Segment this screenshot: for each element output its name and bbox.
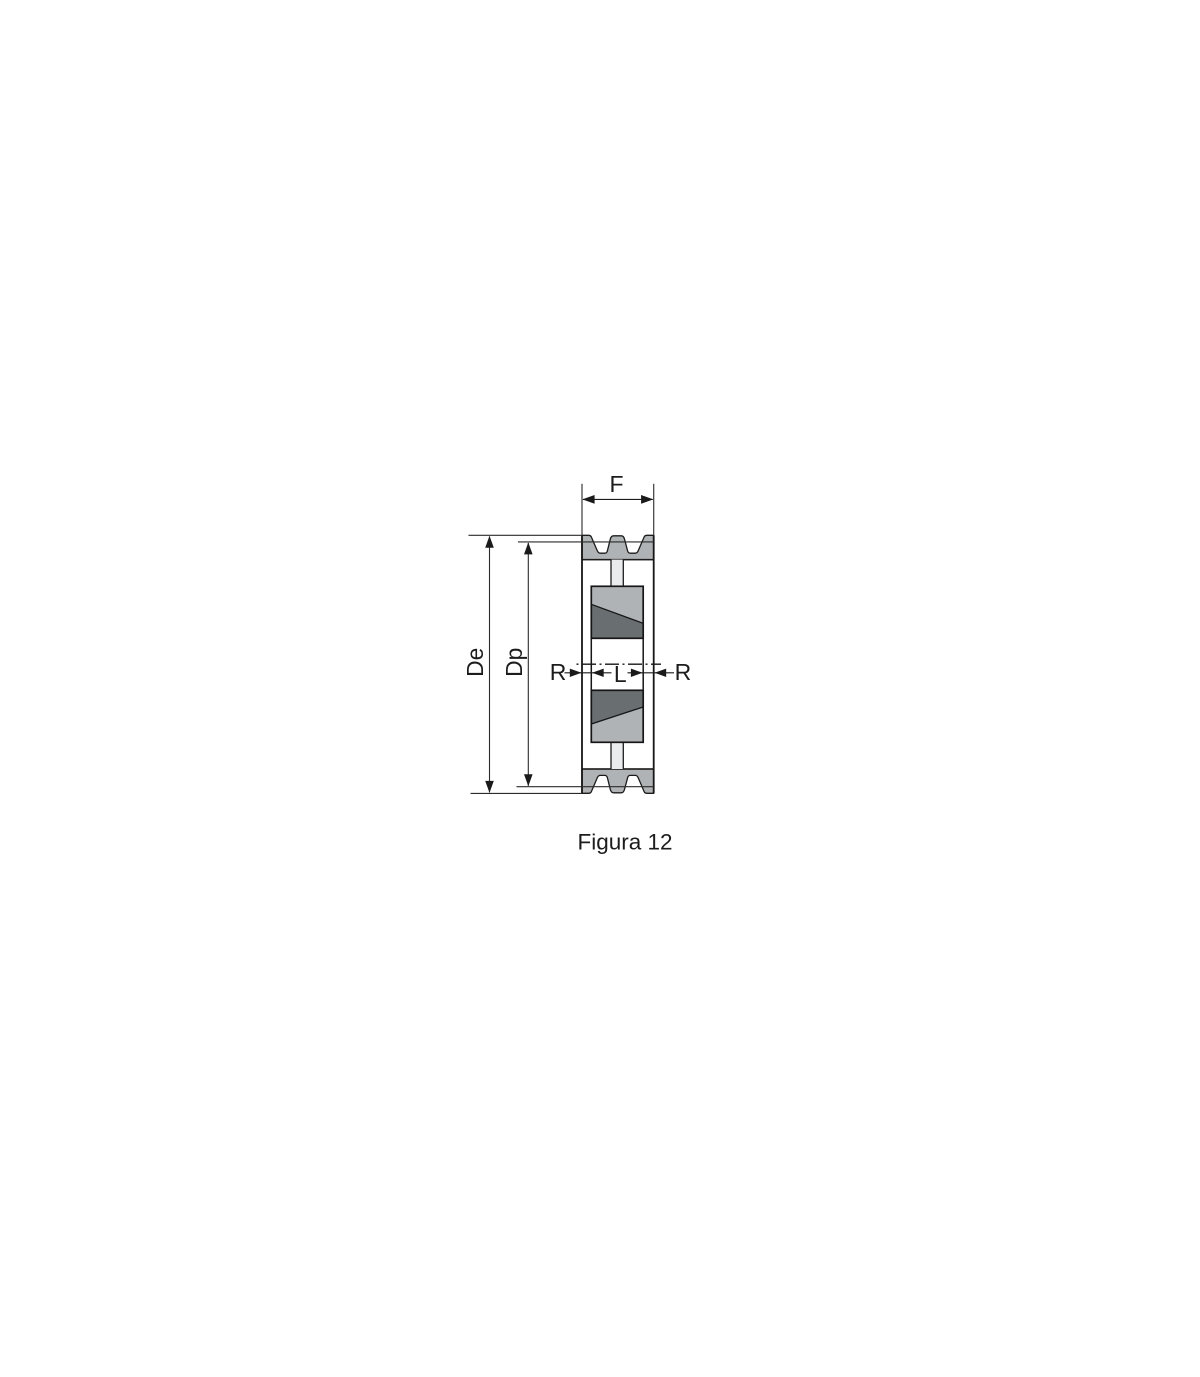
svg-text:R: R xyxy=(550,659,567,685)
svg-text:L: L xyxy=(614,661,627,687)
svg-text:Dp: Dp xyxy=(501,648,527,677)
svg-text:Figura 12: Figura 12 xyxy=(578,829,673,854)
svg-text:F: F xyxy=(609,471,623,497)
svg-text:De: De xyxy=(462,648,488,677)
svg-text:R: R xyxy=(675,659,692,685)
